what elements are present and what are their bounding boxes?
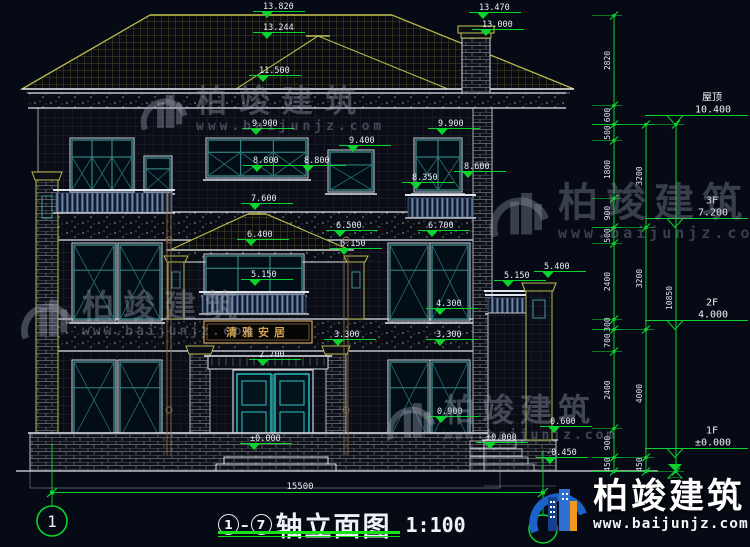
level-annotation: 11.500 <box>259 66 290 76</box>
chain-dim-value: 500 <box>603 125 612 140</box>
chain-dim-value: 3200 <box>635 166 644 185</box>
title-text: 轴立面图 <box>276 505 392 544</box>
level-annotation: 8.600 <box>464 162 490 172</box>
floor-label: 1F <box>706 426 718 437</box>
chain-dim-value: 450 <box>635 457 644 472</box>
title-scale: 1:100 <box>406 513 466 537</box>
level-annotation: 0.600 <box>550 417 576 427</box>
floor-label: 3F <box>706 196 718 207</box>
level-annotation: 5.400 <box>544 262 570 272</box>
level-annotation: 2.700 <box>259 350 285 360</box>
level-annotation: 5.150 <box>504 271 530 281</box>
level-annotation: 6.400 <box>247 230 273 240</box>
level-annotation: ±0.000 <box>486 433 517 443</box>
level-annotation: 6.150 <box>340 239 366 249</box>
cad-elevation-viewport: 清雅安居 13.82013.24413.47013.00011.5009.900… <box>0 0 750 547</box>
chain-dim-value: 900 <box>603 206 612 221</box>
chain-dim-value: 2820 <box>603 51 612 70</box>
level-annotation: 9.900 <box>438 119 464 129</box>
level-annotation: 13.244 <box>263 23 294 33</box>
floor-elevation: 7.200 <box>698 208 728 219</box>
level-annotation: 9.900 <box>252 119 278 129</box>
chain-dim-value: 1800 <box>603 160 612 179</box>
level-annotation: 13.820 <box>263 2 294 12</box>
level-annotation: 8.800 <box>304 156 330 166</box>
level-annotation: 8.350 <box>412 173 438 183</box>
overall-dimension: 15500 <box>286 482 313 492</box>
floor-label: 2F <box>706 298 718 309</box>
chain-dim-value: 2400 <box>603 272 612 291</box>
level-annotation: 9.400 <box>349 136 375 146</box>
chain-dim-value: 900 <box>603 436 612 451</box>
axis-start-bubble: 1 <box>218 514 239 535</box>
drawing-title: 1 – 7 轴立面图 1:100 <box>218 505 466 544</box>
level-annotation: 8.800 <box>253 156 279 166</box>
level-annotation: 7.600 <box>251 194 277 204</box>
level-annotation: -0.450 <box>546 448 577 458</box>
elevation-drawing: 清雅安居 13.82013.24413.47013.00011.5009.900… <box>0 0 750 547</box>
floor-elevation: 10.400 <box>695 105 731 116</box>
chain-dim-value: 600 <box>603 108 612 123</box>
level-annotation: 6.700 <box>428 221 454 231</box>
chain-dim-value: 4000 <box>635 384 644 403</box>
plaque-text: 清雅安居 <box>226 325 290 339</box>
axis-range-dash: – <box>241 516 249 534</box>
floor-elevation: 4.000 <box>698 310 728 321</box>
axis-bubble-left: 1 <box>47 512 57 531</box>
level-annotation: 4.300 <box>436 299 462 309</box>
chain-dim-value: 450 <box>603 457 612 472</box>
level-annotation: ±0.000 <box>250 434 281 444</box>
level-annotation: 6.500 <box>336 221 362 231</box>
level-annotation: 0.900 <box>437 407 463 417</box>
level-annotation: 5.150 <box>251 270 277 280</box>
level-annotation: 13.470 <box>479 3 510 13</box>
chain-dim-value: 10850 <box>665 286 674 310</box>
level-annotation: 3.300 <box>334 330 360 340</box>
floor-elevation: ±0.000 <box>695 438 731 449</box>
level-annotation: 3.300 <box>436 330 462 340</box>
chain-dim-value: 500 <box>603 228 612 243</box>
floor-label: 屋顶 <box>702 92 722 104</box>
axis-end-bubble: 7 <box>251 514 272 535</box>
chain-dim-value: 3200 <box>635 269 644 288</box>
chain-dim-value: 700 <box>603 333 612 348</box>
chain-dim-value: 2400 <box>603 380 612 399</box>
level-annotation: 13.000 <box>482 20 513 30</box>
